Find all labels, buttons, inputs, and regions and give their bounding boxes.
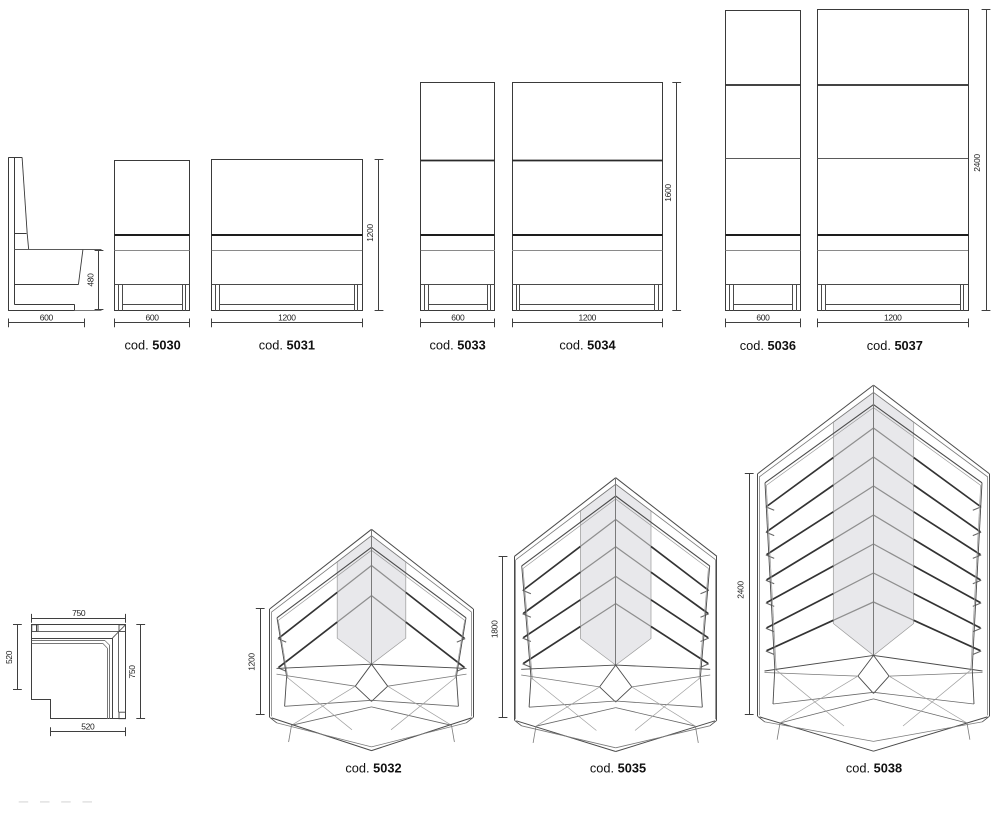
svg-text:520: 520: [81, 722, 95, 732]
svg-text:2400: 2400: [972, 154, 982, 172]
svg-text:cod. 5034: cod. 5034: [559, 338, 616, 353]
svg-text:1200: 1200: [365, 224, 375, 242]
svg-text:cod. 5030: cod. 5030: [124, 338, 180, 353]
svg-text:cod. 5035: cod. 5035: [590, 761, 646, 776]
svg-text:cod. 5038: cod. 5038: [846, 761, 902, 776]
svg-text:1200: 1200: [884, 313, 902, 323]
svg-text:1600: 1600: [663, 184, 673, 202]
svg-text:cod. 5031: cod. 5031: [259, 338, 315, 353]
svg-text:cod. 5032: cod. 5032: [345, 761, 401, 776]
svg-text:600: 600: [146, 313, 160, 323]
svg-text:750: 750: [127, 665, 137, 679]
svg-text:1800: 1800: [489, 620, 499, 638]
svg-text:cod. 5033: cod. 5033: [429, 338, 485, 353]
svg-text:2400: 2400: [736, 581, 746, 599]
svg-text:1200: 1200: [578, 313, 596, 323]
svg-text:750: 750: [72, 608, 86, 618]
svg-text:520: 520: [4, 650, 14, 664]
svg-text:cod. 5036: cod. 5036: [740, 338, 796, 353]
svg-text:1200: 1200: [247, 653, 257, 671]
svg-text:cod. 5037: cod. 5037: [867, 338, 923, 353]
svg-text:600: 600: [756, 313, 770, 323]
svg-text:600: 600: [40, 313, 54, 323]
svg-text:1200: 1200: [278, 313, 296, 323]
svg-text:480: 480: [85, 273, 95, 287]
svg-text:600: 600: [451, 313, 465, 323]
